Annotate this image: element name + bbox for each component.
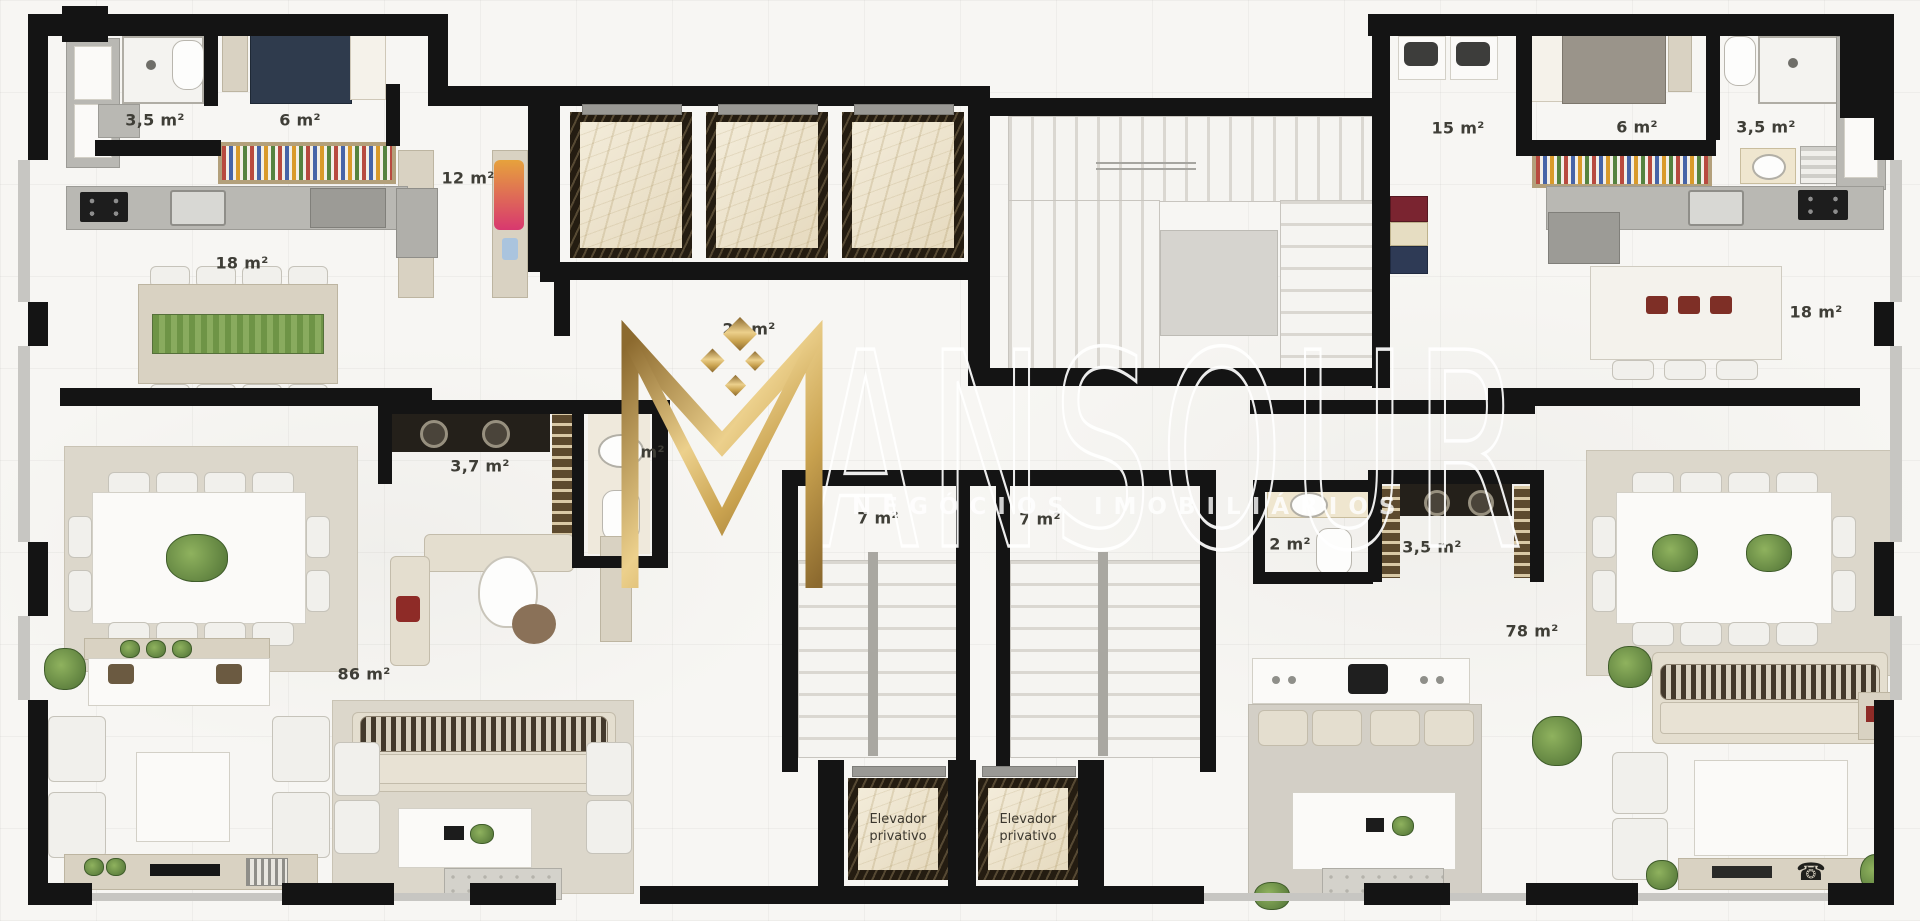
plant xyxy=(1532,716,1582,766)
striped-pillows xyxy=(1660,664,1880,700)
media-device xyxy=(1712,866,1772,878)
wall-segment xyxy=(28,883,92,905)
wall-segment xyxy=(378,400,392,484)
bed-pillows xyxy=(1528,34,1564,102)
plant xyxy=(1646,860,1678,890)
window-opening xyxy=(18,160,30,302)
wall-segment xyxy=(1874,700,1894,905)
wall-segment xyxy=(1828,883,1894,905)
wall-segment xyxy=(540,86,988,106)
sink-basin xyxy=(420,420,448,448)
wall-segment xyxy=(62,6,108,42)
brown-pillow xyxy=(108,664,134,684)
armchair xyxy=(1424,710,1474,746)
window-opening xyxy=(18,346,30,542)
bar-dot xyxy=(1420,676,1428,684)
wall-segment xyxy=(386,84,400,146)
wall-segment xyxy=(818,886,1108,904)
dining-chair xyxy=(1832,570,1856,612)
hanging-clothes xyxy=(494,160,524,230)
window-opening xyxy=(18,616,30,700)
room-label-right-service: 15 m² xyxy=(1431,119,1484,138)
bathroom-counter xyxy=(392,412,550,452)
wall-segment xyxy=(1530,470,1544,582)
armchair xyxy=(334,742,380,796)
bed xyxy=(1562,28,1666,104)
dining-chair xyxy=(1592,570,1616,612)
dryer-lid xyxy=(1456,42,1490,66)
wall-segment xyxy=(1516,140,1716,156)
elevator-shaft xyxy=(706,112,828,258)
window-opening xyxy=(1450,893,1526,901)
bed xyxy=(250,28,352,104)
folded-towels xyxy=(1390,246,1428,274)
counter-appliance xyxy=(1548,212,1620,264)
bar-dot xyxy=(1436,676,1444,684)
elevator-marble-floor xyxy=(580,122,682,248)
elevator-shaft xyxy=(570,112,692,258)
wardrobe-rack xyxy=(218,142,396,184)
wall-segment xyxy=(572,400,584,568)
wall-segment xyxy=(948,760,976,900)
wall-segment xyxy=(540,86,560,282)
folded-towels xyxy=(1390,196,1428,222)
elevator-door-lintel xyxy=(982,766,1076,777)
brand-monogram-m-logo xyxy=(616,316,830,596)
dining-chair xyxy=(1592,516,1616,558)
dining-chair xyxy=(68,516,92,558)
bathroom-shelving xyxy=(552,412,574,544)
bed-pillows xyxy=(350,32,386,100)
shower-head-icon xyxy=(1788,58,1798,68)
private-elevator-label: Elevador privativo xyxy=(858,788,938,870)
nightstand xyxy=(222,30,248,92)
wall-segment xyxy=(990,98,1390,116)
island-chair xyxy=(1664,360,1706,380)
wall-segment xyxy=(282,883,394,905)
wall-segment xyxy=(28,542,48,616)
wall-segment xyxy=(540,262,988,280)
dining-chair xyxy=(1728,622,1770,646)
table-centerpiece-plant xyxy=(1746,534,1792,572)
book xyxy=(1366,818,1384,832)
elevator-door-lintel xyxy=(582,104,682,115)
armchair xyxy=(586,800,632,854)
bar-dot xyxy=(1288,676,1296,684)
island-decor xyxy=(1646,296,1668,314)
plant xyxy=(106,858,126,876)
elevator-door-lintel xyxy=(854,104,954,115)
wall-segment xyxy=(60,388,432,406)
window-opening xyxy=(92,893,282,901)
armchair xyxy=(1312,710,1362,746)
dining-chair xyxy=(306,570,330,612)
elevator-marble-floor xyxy=(716,122,818,248)
brown-pillow xyxy=(216,664,242,684)
bar-dot xyxy=(1272,676,1280,684)
wall-segment xyxy=(28,302,48,346)
phone-icon: ☎ xyxy=(1796,858,1826,886)
dining-chair xyxy=(1776,622,1818,646)
dining-table xyxy=(1616,492,1832,624)
private-elevator-right: Elevador privativo xyxy=(978,778,1078,880)
wall-segment xyxy=(204,30,218,106)
armchair xyxy=(1258,710,1308,746)
elevator-shaft xyxy=(842,112,964,258)
room-label-left-bathroom: 3,7 m² xyxy=(450,457,509,476)
tv xyxy=(150,864,220,876)
wall-segment xyxy=(1874,302,1894,346)
cooktop xyxy=(80,192,128,222)
table-centerpiece-plant xyxy=(166,534,228,582)
wall-segment xyxy=(1078,760,1104,900)
plant xyxy=(44,648,86,690)
dining-chair xyxy=(68,570,92,612)
folded-towels xyxy=(1390,222,1428,246)
cooktop xyxy=(1798,190,1848,220)
plant xyxy=(1608,646,1652,688)
armchair xyxy=(586,742,632,796)
wall-segment xyxy=(28,700,48,905)
table-centerpiece-plant xyxy=(1652,534,1698,572)
wall-segment xyxy=(95,140,221,156)
book xyxy=(444,826,464,840)
room-label-left-closet: 12 m² xyxy=(441,169,494,188)
brand-subtitle: NEGÓCIOS IMOBILIÁRIOS xyxy=(852,494,1406,520)
dining-chair xyxy=(306,516,330,558)
wall-segment xyxy=(1874,542,1894,616)
shower-head-icon xyxy=(146,60,156,70)
armchair xyxy=(334,800,380,854)
room-label-left-suite-bath: 3,5 m² xyxy=(125,111,184,130)
refrigerator xyxy=(396,188,438,258)
private-elevator-left: Elevador privativo xyxy=(848,778,948,880)
room-label-right-living: 78 m² xyxy=(1505,622,1558,641)
elevator-door-lintel xyxy=(852,766,946,777)
room-label-left-living: 86 m² xyxy=(337,665,390,684)
elevator-door-lintel xyxy=(718,104,818,115)
wall-segment xyxy=(818,760,844,900)
wall-segment xyxy=(1488,388,1860,406)
wall-segment xyxy=(1516,28,1532,150)
plant xyxy=(84,858,104,876)
elevator-marble-floor xyxy=(852,122,954,248)
dining-chair xyxy=(1680,622,1722,646)
armchair xyxy=(1612,752,1668,814)
brand-wordmark: ANSOUR xyxy=(812,348,1531,559)
clothes-item xyxy=(502,238,518,260)
lavabo-sink xyxy=(1752,154,1786,180)
island-runner xyxy=(152,314,324,354)
plant xyxy=(172,640,192,658)
coffee-table xyxy=(398,808,532,868)
kitchen-sink xyxy=(1688,190,1744,226)
closet-panel xyxy=(74,46,112,100)
island-decor xyxy=(1678,296,1700,314)
floor-plan-canvas: Elevador privativo Elevador privativo xyxy=(0,0,1920,921)
wall-segment xyxy=(1874,14,1894,160)
armchair xyxy=(1370,710,1420,746)
sofa-seat xyxy=(1660,702,1880,734)
toilet xyxy=(172,40,204,90)
window-opening xyxy=(1890,160,1902,302)
window-opening xyxy=(394,893,470,901)
private-elevator-label: Elevador privativo xyxy=(988,788,1068,870)
window-opening xyxy=(1638,893,1828,901)
round-ottoman xyxy=(512,604,556,644)
closet-panel xyxy=(1844,112,1878,178)
plant xyxy=(120,640,140,658)
wall-segment xyxy=(1368,14,1894,36)
sliding-door-mark xyxy=(1096,162,1196,170)
plant xyxy=(1392,816,1414,836)
sink-basin xyxy=(482,420,510,448)
wall-segment xyxy=(470,883,556,905)
window-opening xyxy=(1890,346,1902,542)
dining-chair xyxy=(1832,516,1856,558)
dining-chair xyxy=(1632,622,1674,646)
bar-appliance xyxy=(1348,664,1388,694)
armchair xyxy=(48,716,106,782)
island-chair xyxy=(1716,360,1758,380)
plant xyxy=(146,640,166,658)
counter-appliance xyxy=(310,188,386,228)
room-label-right-kitchen: 18 m² xyxy=(1789,303,1842,322)
coffee-table xyxy=(1694,760,1848,856)
wall-segment xyxy=(1364,883,1450,905)
red-pillow xyxy=(396,596,420,622)
washer-lid xyxy=(1404,42,1438,66)
island-decor xyxy=(1710,296,1732,314)
room-label-left-kitchen: 18 m² xyxy=(215,254,268,273)
wall-segment xyxy=(1706,28,1720,140)
armchair xyxy=(272,792,330,858)
room-label-right-suite-bath: 3,5 m² xyxy=(1736,118,1795,137)
wall-segment xyxy=(28,14,48,160)
plant xyxy=(470,824,494,844)
window-opening xyxy=(1890,616,1902,700)
coffee-table xyxy=(136,752,230,842)
armchair xyxy=(272,716,330,782)
toilet xyxy=(1724,36,1756,86)
kitchen-sink xyxy=(170,190,226,226)
radiator xyxy=(246,858,288,886)
wall-segment xyxy=(1526,883,1638,905)
striped-pillows xyxy=(360,716,608,752)
room-label-right-bedroom: 6 m² xyxy=(1616,118,1658,137)
armchair xyxy=(48,792,106,858)
room-label-left-bedroom: 6 m² xyxy=(279,111,321,130)
common-stairs-upper-run xyxy=(1008,116,1374,202)
island-chair xyxy=(1612,360,1654,380)
window-opening xyxy=(1204,893,1364,901)
sofa-seat xyxy=(360,754,608,784)
nightstand xyxy=(1668,32,1692,92)
